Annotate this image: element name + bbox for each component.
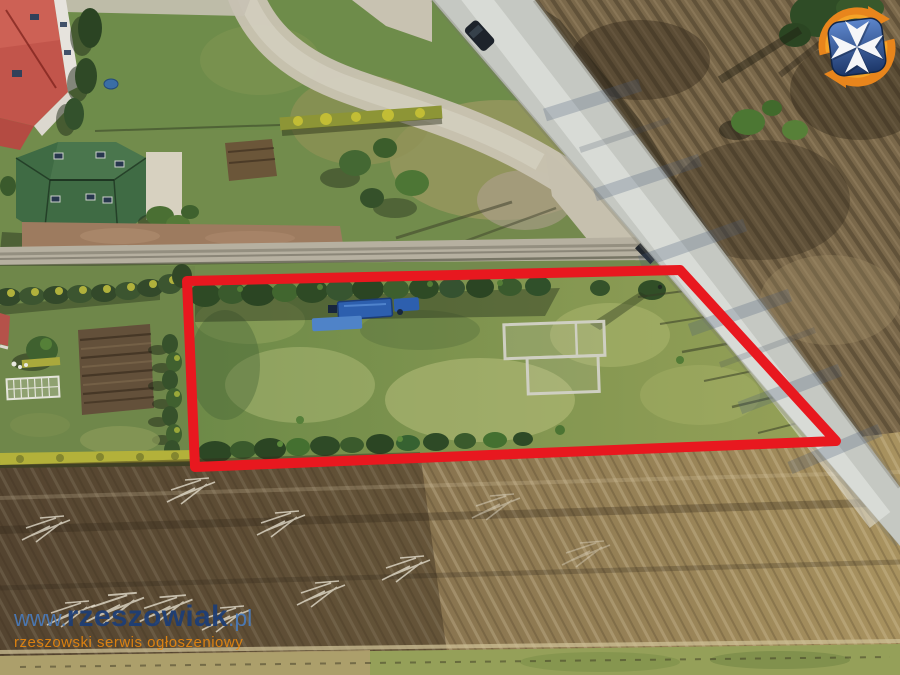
greenhouse-frame	[7, 377, 60, 400]
watermark-tagline: rzeszowski serwis ogłoszeniowy	[14, 635, 252, 650]
watermark-tld: .pl	[228, 605, 252, 631]
aerial-photo-scene	[0, 0, 900, 675]
watermark-www: www.	[14, 606, 67, 631]
aerial-photo: www.rzeszowiak.pl rzeszowski serwis ogło…	[0, 0, 900, 675]
site-logo	[816, 4, 898, 88]
conifer-tree	[78, 8, 102, 48]
watermark-url: www.rzeszowiak.pl	[14, 602, 252, 632]
watermark: www.rzeszowiak.pl rzeszowski serwis ogło…	[14, 602, 252, 650]
watermark-site-name: rzeszowiak	[67, 600, 228, 633]
rzeszowiak-logo-icon	[816, 4, 898, 88]
